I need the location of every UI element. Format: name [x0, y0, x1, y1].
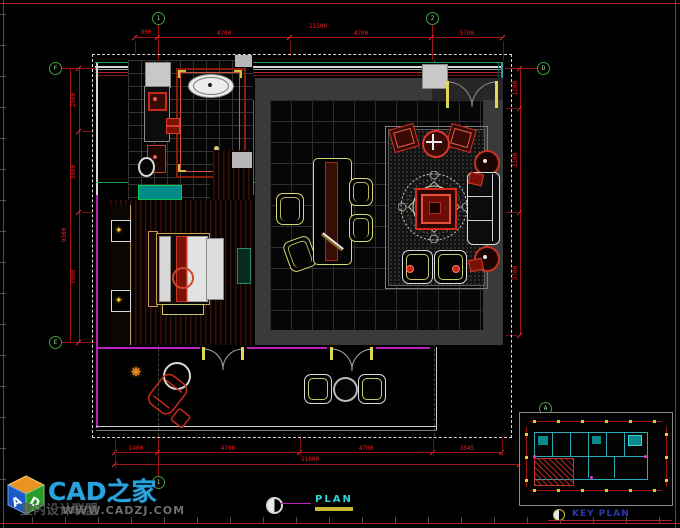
keyplan-room-line: [588, 432, 589, 457]
dim-line-left-seg: [79, 68, 80, 342]
keyplan-tick: [665, 433, 668, 436]
bed-pillows: [159, 236, 171, 302]
tub-corner-gold-1: [178, 70, 186, 78]
grid-bubble-right: D: [537, 62, 550, 75]
plan-title-circle: [266, 497, 283, 514]
dim-label: 4700: [217, 31, 231, 37]
dim-label: 3545: [460, 446, 474, 452]
dim-label: 3800: [71, 160, 77, 184]
dim-ext: [115, 438, 116, 468]
tub-corner-gold-2: [234, 70, 242, 78]
left-ruler-ticks: [0, 0, 6, 510]
side-table-south-dot: [483, 255, 487, 259]
bed-foot-bench: [206, 238, 224, 300]
keyplan-room-line: [606, 432, 607, 457]
dim-ext: [82, 212, 92, 213]
dim-label: 4700: [354, 31, 368, 37]
vanity-faucet: [153, 97, 157, 101]
corridor-landing: [232, 152, 252, 168]
plan-title: PLAN: [315, 494, 353, 505]
frame-bottom-line: [0, 523, 680, 524]
keyplan-tick: [653, 489, 656, 492]
plan-title-bar: [315, 507, 353, 511]
dim-label-total: 9300: [62, 223, 68, 247]
dim-label-total: 11500: [309, 24, 327, 30]
tub-corner-gold-3: [178, 164, 186, 172]
keyplan-tick: [525, 456, 528, 459]
frame-top-line: [0, 3, 680, 4]
bed-decor-circle: [172, 267, 194, 289]
bathroom-column-ne: [235, 55, 252, 67]
dim-label: 4700: [359, 446, 373, 452]
dim-line-bottom-1: [115, 452, 502, 453]
dim-label: 3100: [513, 148, 519, 172]
wall-balcony-magenta: [247, 347, 327, 349]
keyplan-tick: [605, 489, 608, 492]
grid-bubble-2-top: 2: [426, 12, 439, 25]
bedroom-balcony-door: [197, 345, 249, 375]
dim-label: 900: [141, 30, 152, 36]
keyplan-room-line: [614, 457, 615, 478]
dim-label-total: 11000: [301, 457, 319, 463]
bath-cabinet-knob: [153, 155, 157, 159]
dim-tick: [517, 333, 523, 339]
dim-label: 3000: [71, 265, 77, 289]
keyplan-tick: [629, 420, 632, 423]
desk-chair-east-2: [349, 214, 373, 242]
bath-door-leaf-1: [166, 118, 180, 126]
chair-flower-red-2: [452, 265, 460, 273]
dining-table-center: [429, 202, 441, 214]
bubble-leader: [158, 436, 159, 476]
wall-balcony-bottom2: [96, 430, 437, 431]
vanity-sink: [148, 92, 167, 111]
frame-right-line: [675, 0, 676, 528]
keyplan-title-underline: [548, 520, 672, 521]
shower-threshold-teal: [138, 185, 182, 200]
bath-door-leaf-2: [166, 126, 180, 134]
keyplan-room-fill: [628, 435, 642, 446]
lamp-icon: ✦: [115, 296, 123, 305]
keyplan-dim-top: [530, 421, 662, 422]
grid-bubble-left-top: F: [49, 62, 62, 75]
sofa-pillow-red-1: [468, 172, 484, 187]
chair-flower-red-1: [406, 265, 414, 273]
dim-ext: [433, 438, 434, 456]
wall-left-magenta: [96, 195, 98, 428]
entry-double-door: [430, 76, 506, 114]
dim-ext: [82, 131, 92, 132]
keyplan-room-line: [552, 432, 553, 457]
keyplan-room-line: [570, 432, 571, 457]
keyplan-tick: [581, 489, 584, 492]
desk-red-runner: [325, 162, 338, 261]
wall-bath-living-green: [253, 100, 254, 195]
keyplan-tick: [525, 433, 528, 436]
dim-label: 3700: [513, 261, 519, 285]
dim-line-bottom-2: [115, 464, 520, 465]
desk-chair-east-1: [349, 178, 373, 206]
keyplan-title: KEY PLAN: [572, 509, 630, 519]
keyplan-room-fill: [592, 436, 601, 444]
dim-label: 1400: [129, 446, 143, 452]
keyplan-room-line: [588, 457, 589, 478]
cad-drawing-canvas: 1 2 F E D 1 A 900 4700 4700 5700 11500 1…: [0, 0, 680, 528]
dim-label: 4700: [221, 446, 235, 452]
dim-tick: [500, 35, 506, 41]
keyplan-tick: [665, 479, 668, 482]
keyplan-tick: [557, 420, 560, 423]
balcony-chair-east: [358, 374, 386, 404]
sofa-east-cushion-line2: [468, 220, 492, 221]
keyplan-tick: [653, 420, 656, 423]
keyplan-corridor-line: [534, 456, 646, 457]
dim-label: 2500: [71, 88, 77, 112]
wall-balcony-magenta: [96, 347, 200, 349]
dining-chair-round-top-cross2: [426, 141, 442, 143]
wall-balcony-right: [436, 347, 437, 430]
wall-left-white: [96, 63, 98, 195]
keyplan-room-line: [624, 432, 625, 457]
balcony-chair-west: [304, 374, 332, 404]
side-table-north-dot: [483, 159, 487, 163]
keyplan-tick: [533, 489, 536, 492]
dim-ext: [135, 41, 136, 53]
keyplan-current-unit-hatch: [534, 458, 574, 486]
balcony-round-table: [333, 377, 358, 402]
keyplan-node: [533, 455, 536, 458]
grid-bubble-1-top: 1: [152, 12, 165, 25]
keyplan-tick: [525, 479, 528, 482]
dim-line-top: [135, 37, 503, 38]
keyplan-tick: [557, 489, 560, 492]
dim-label: 5700: [460, 31, 474, 37]
tv-cabinet: [237, 248, 251, 284]
keyplan-node: [644, 455, 647, 458]
plan-title-leader-magenta: [281, 503, 311, 504]
bathroom-column: [145, 62, 171, 88]
keyplan-tick: [665, 456, 668, 459]
wall-balcony-magenta: [376, 347, 430, 349]
keyplan-tick: [605, 420, 608, 423]
keyplan-tick: [533, 420, 536, 423]
bathtub-drain: [208, 83, 212, 87]
keyplan-node: [590, 476, 593, 479]
grid-bubble-left-bottom: E: [49, 336, 62, 349]
keyplan-tick: [629, 489, 632, 492]
keyplan-room-fill: [538, 436, 548, 445]
dim-ext: [300, 438, 301, 456]
desk-chair-west: [276, 193, 304, 225]
bedroom-bench: [162, 304, 204, 315]
sofa-east-cushion-line1: [468, 196, 492, 197]
dining-chair-se: [434, 250, 467, 284]
dining-chair-round-top: [422, 130, 450, 158]
watermark-url: WWW.CADZJ.COM: [62, 504, 185, 517]
sofa-east-back-line: [492, 174, 493, 241]
dim-ext: [502, 438, 503, 456]
dim-label: 1200: [513, 76, 519, 100]
keyplan-tick: [581, 420, 584, 423]
lounge-chair: [140, 373, 220, 428]
living-balcony-door: [325, 345, 378, 375]
keyplan-dim-bottom: [530, 490, 662, 491]
toilet: [138, 157, 155, 177]
lamp-icon: ✦: [115, 226, 123, 235]
